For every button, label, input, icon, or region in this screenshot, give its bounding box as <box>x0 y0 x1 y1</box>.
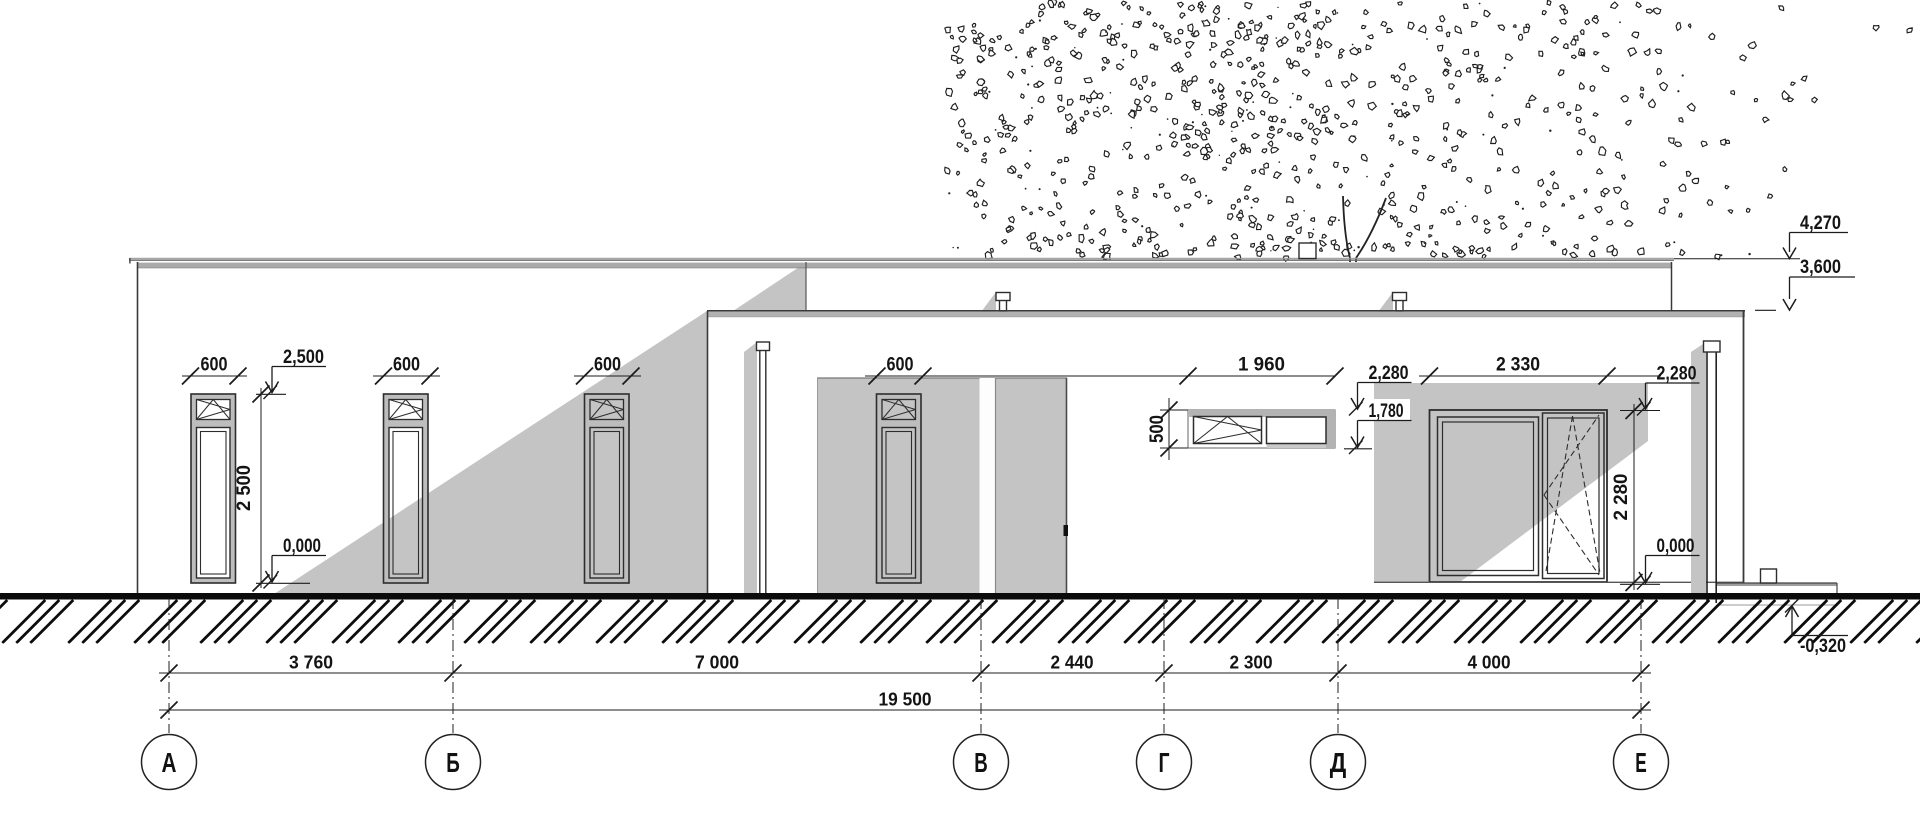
svg-text:2 330: 2 330 <box>1496 355 1540 376</box>
svg-text:1 960: 1 960 <box>1238 355 1285 376</box>
svg-text:2,500: 2,500 <box>283 347 324 368</box>
svg-text:0,000: 0,000 <box>283 536 321 557</box>
svg-text:Д: Д <box>1330 747 1347 778</box>
svg-text:2 280: 2 280 <box>1611 474 1632 521</box>
svg-text:Г: Г <box>1159 747 1170 778</box>
svg-text:500: 500 <box>1147 415 1168 443</box>
svg-text:В: В <box>974 747 988 778</box>
svg-text:3,600: 3,600 <box>1800 257 1841 278</box>
svg-text:А: А <box>162 747 177 778</box>
svg-text:4 000: 4 000 <box>1468 652 1511 673</box>
svg-text:600: 600 <box>887 355 914 376</box>
svg-text:1,780: 1,780 <box>1369 401 1404 422</box>
svg-text:2 500: 2 500 <box>234 465 255 511</box>
svg-text:600: 600 <box>594 355 621 376</box>
svg-text:600: 600 <box>393 355 420 376</box>
svg-text:0,000: 0,000 <box>1657 536 1695 557</box>
svg-text:600: 600 <box>201 355 228 376</box>
svg-text:2,280: 2,280 <box>1657 364 1697 385</box>
svg-text:2,280: 2,280 <box>1369 363 1409 384</box>
svg-text:3 760: 3 760 <box>289 652 333 673</box>
svg-text:7 000: 7 000 <box>695 652 739 673</box>
svg-text:-0,320: -0,320 <box>1800 636 1846 657</box>
svg-text:Б: Б <box>446 747 460 778</box>
svg-text:2 440: 2 440 <box>1051 652 1094 673</box>
svg-text:2 300: 2 300 <box>1230 652 1273 673</box>
svg-text:19 500: 19 500 <box>879 689 932 710</box>
svg-text:Е: Е <box>1635 747 1647 778</box>
svg-text:4,270: 4,270 <box>1800 213 1841 234</box>
